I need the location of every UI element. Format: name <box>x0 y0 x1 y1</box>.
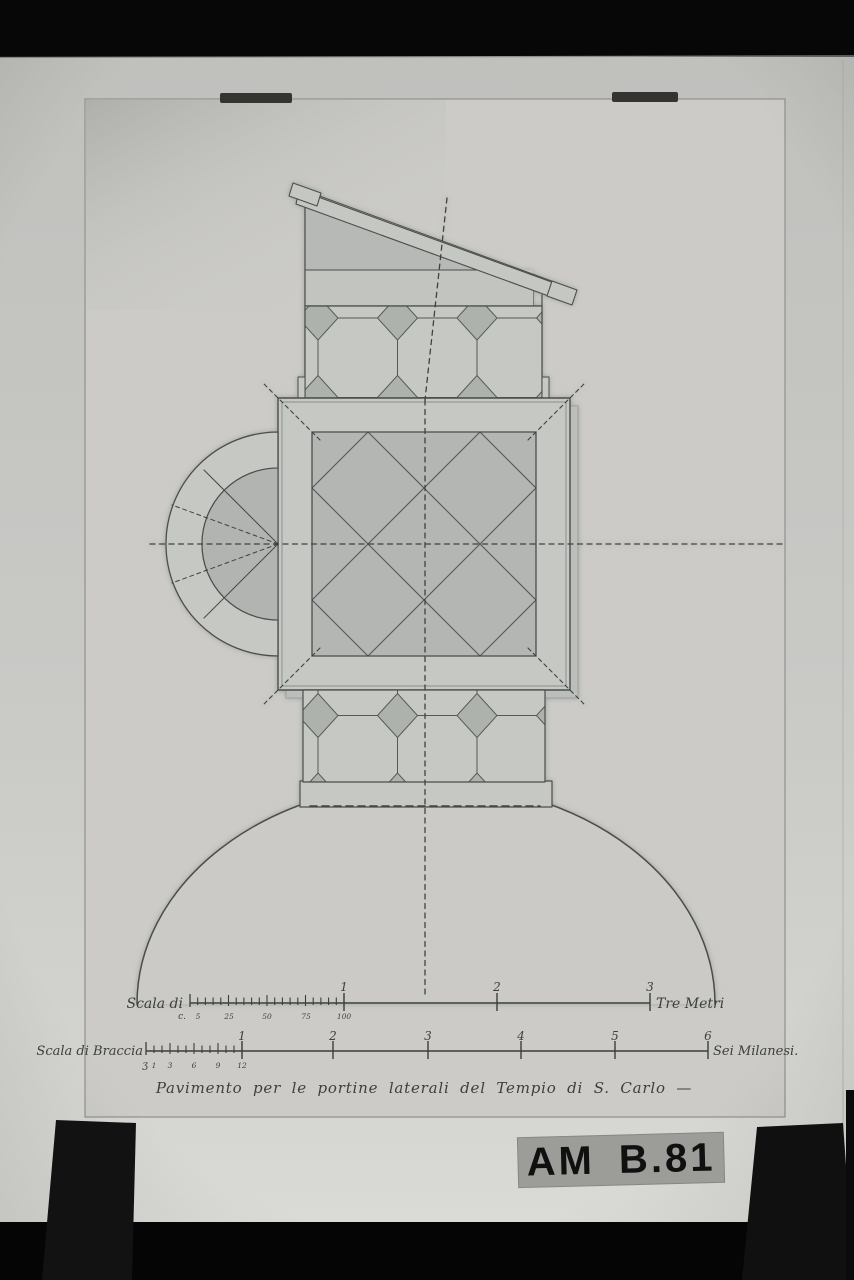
drawing-photo-canvas: Scala di Tre Metri c. 1235255075100 Scal… <box>0 0 854 1280</box>
clamp-right <box>742 1123 854 1280</box>
archive-label: AM B.81 <box>517 1132 724 1187</box>
photo-vignette <box>0 57 854 1223</box>
right-edge-shadow <box>846 1090 854 1280</box>
archive-code-text: AM B.81 <box>526 1136 716 1185</box>
photograph-of-drawing: { "photo": { "archive_label": "AM B.81",… <box>0 0 854 1280</box>
clamp-left <box>42 1120 136 1280</box>
